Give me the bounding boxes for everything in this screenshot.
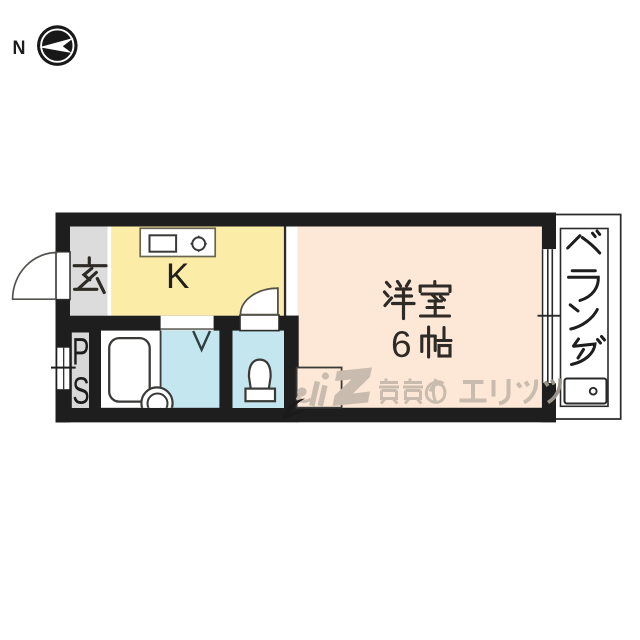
svg-text:N: N: [13, 36, 26, 58]
svg-text:6: 6: [391, 324, 412, 365]
svg-text:S: S: [72, 370, 89, 412]
svg-text:P: P: [72, 331, 89, 373]
svg-text:K: K: [166, 257, 189, 296]
